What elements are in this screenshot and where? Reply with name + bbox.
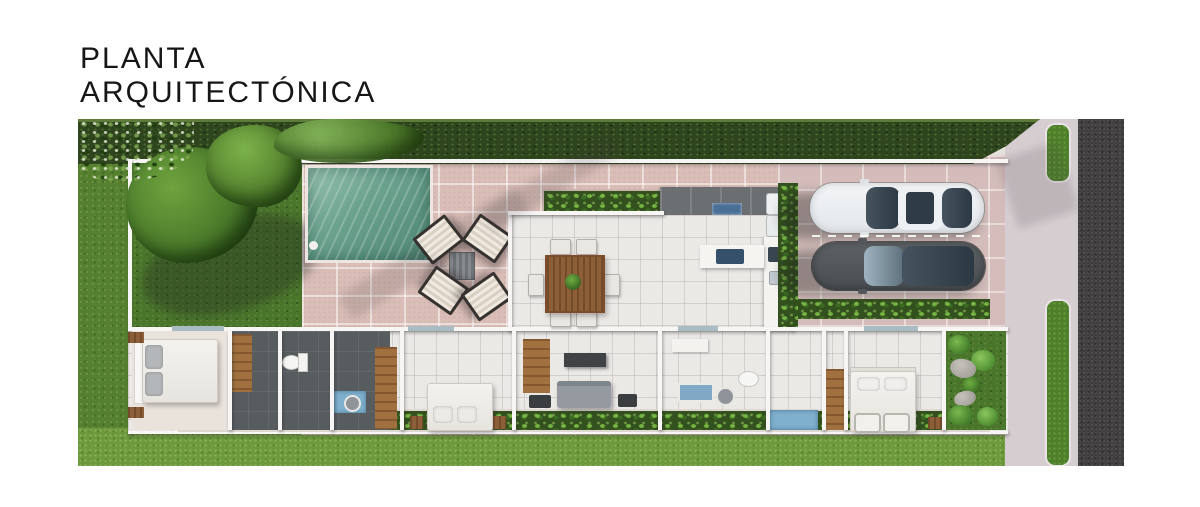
car-white-windshield bbox=[866, 187, 900, 229]
bath1-corridor-floor bbox=[278, 331, 390, 430]
car-white-sunroof bbox=[906, 192, 934, 224]
car-dark-roof-glass bbox=[902, 246, 974, 286]
dining-chair-s1 bbox=[550, 311, 571, 327]
toilet-2 bbox=[738, 371, 759, 387]
car-dark-mirror-top bbox=[858, 238, 867, 243]
shower-2-blue-tile bbox=[770, 410, 818, 430]
bed3-armchair-b bbox=[883, 413, 910, 433]
toilet-1-tank bbox=[298, 353, 308, 372]
street-asphalt bbox=[1075, 119, 1124, 466]
car-white bbox=[810, 183, 984, 233]
interior-wall-c bbox=[330, 331, 334, 430]
side-table-b bbox=[618, 394, 637, 407]
bed3-bench bbox=[928, 417, 942, 429]
bed1-bench-b bbox=[128, 407, 144, 418]
bath2-cabinet bbox=[672, 339, 708, 352]
tv-room-wardrobe bbox=[523, 339, 550, 393]
interior-wall-a bbox=[228, 331, 232, 430]
window-living bbox=[678, 326, 718, 331]
tv-screen bbox=[564, 353, 606, 367]
bed2-pillow-b bbox=[457, 406, 477, 423]
bed2-bench-a bbox=[410, 416, 423, 429]
page: { "title": { "line1": "PLANTA", "line2":… bbox=[0, 0, 1200, 507]
island-cooktop bbox=[716, 249, 744, 264]
dining-chair-s2 bbox=[576, 311, 597, 327]
parking-stall-line bbox=[812, 235, 990, 237]
car-dark-mirror-bottom bbox=[858, 289, 867, 294]
car-dark bbox=[812, 242, 985, 290]
dining-chair-e bbox=[604, 274, 620, 296]
hall-wardrobe bbox=[375, 347, 397, 429]
pool-ladder bbox=[309, 241, 318, 250]
side-table-a bbox=[529, 395, 551, 408]
bath2-vanity-blue bbox=[678, 383, 714, 402]
dining-chair-w bbox=[528, 274, 544, 296]
dining-chair-n1 bbox=[550, 239, 571, 255]
dining-centerpiece-plant bbox=[565, 274, 581, 290]
bath2-stool bbox=[716, 387, 735, 406]
interior-wall-e bbox=[512, 331, 516, 430]
car-dark-windshield bbox=[864, 246, 904, 286]
title-line-2: ARQUITECTÓNICA bbox=[80, 76, 376, 110]
car-white-mirror-top bbox=[860, 179, 869, 184]
title-line-1: PLANTA bbox=[80, 42, 376, 76]
bed2-pillow-a bbox=[433, 406, 453, 423]
carport-shrub-strip-horizontal bbox=[798, 299, 990, 319]
verge-strip-bottom bbox=[1045, 299, 1071, 466]
interior-wall-upper-left bbox=[508, 211, 512, 331]
rock-garden-plant-1 bbox=[948, 335, 970, 354]
bed1-bench-a bbox=[128, 332, 144, 343]
bed2-bench-b bbox=[493, 416, 506, 429]
dining-chair-n2 bbox=[576, 239, 597, 255]
interior-wall-upper-top bbox=[508, 211, 664, 215]
closet3-wardrobe bbox=[826, 369, 844, 430]
window-bedroom-3 bbox=[864, 326, 918, 331]
rock-garden-plant-5 bbox=[977, 407, 998, 426]
car-white-rear-window bbox=[942, 188, 972, 228]
bed3-pillow-a bbox=[857, 377, 880, 391]
page-title: PLANTA ARQUITECTÓNICA bbox=[80, 42, 376, 110]
lounge-fire-table bbox=[449, 252, 475, 280]
interior-wall-i bbox=[844, 331, 848, 430]
sofa bbox=[557, 381, 611, 408]
closet1-wardrobe bbox=[232, 334, 252, 392]
floorplan-render bbox=[78, 119, 1124, 466]
interior-wall-d bbox=[400, 331, 404, 430]
pool-water-ripples bbox=[308, 168, 430, 260]
bed3-armchair-a bbox=[854, 413, 881, 433]
interior-wall-b bbox=[278, 331, 282, 430]
bed3-pillow-b bbox=[884, 377, 907, 391]
bed1-pillow-a bbox=[145, 345, 163, 369]
kitchen-backsplash-tiles bbox=[712, 203, 742, 215]
interior-wall-f bbox=[658, 331, 662, 430]
rock-garden-plant-4 bbox=[948, 405, 973, 426]
bed1-pillow-b bbox=[145, 372, 163, 396]
shower-1-basin bbox=[344, 395, 361, 412]
window-bedroom-2 bbox=[408, 326, 454, 331]
